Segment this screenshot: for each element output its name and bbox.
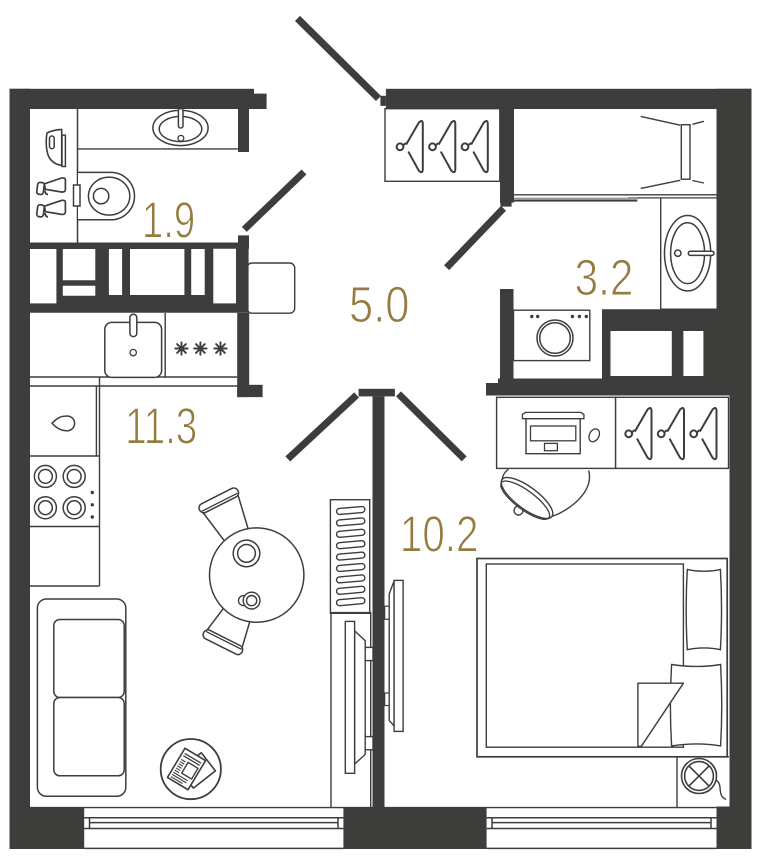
svg-text:3.2: 3.2 [575,249,634,306]
svg-text:5.0: 5.0 [349,276,410,333]
svg-text:10.2: 10.2 [400,506,479,563]
svg-text:1.9: 1.9 [142,192,195,249]
svg-text:11.3: 11.3 [125,398,197,455]
